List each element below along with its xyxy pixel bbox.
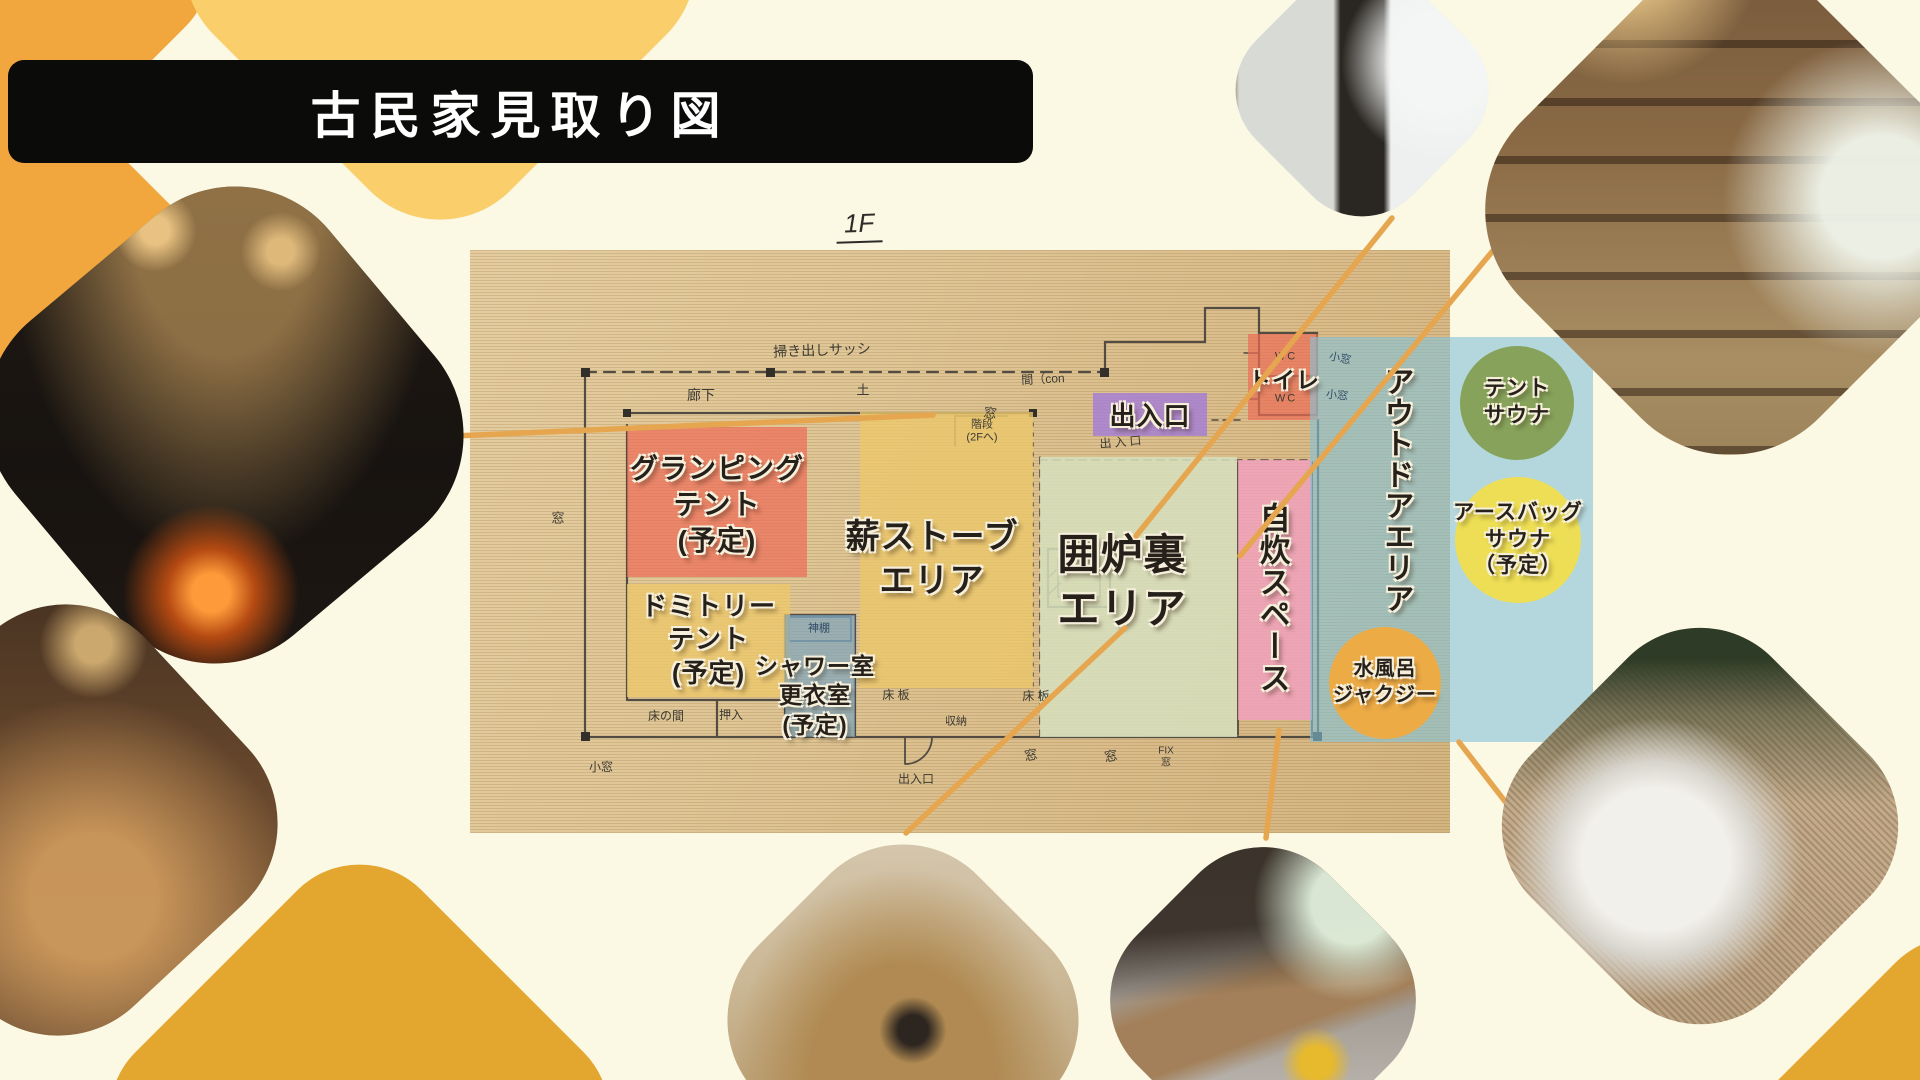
slide-canvas: グランピング テント (予定) ドミトリー テント (予定) シャワー室 更衣室… (0, 0, 1920, 1080)
title-bar: 古民家見取り図 (8, 60, 1033, 163)
page-title: 古民家見取り図 (311, 76, 731, 148)
